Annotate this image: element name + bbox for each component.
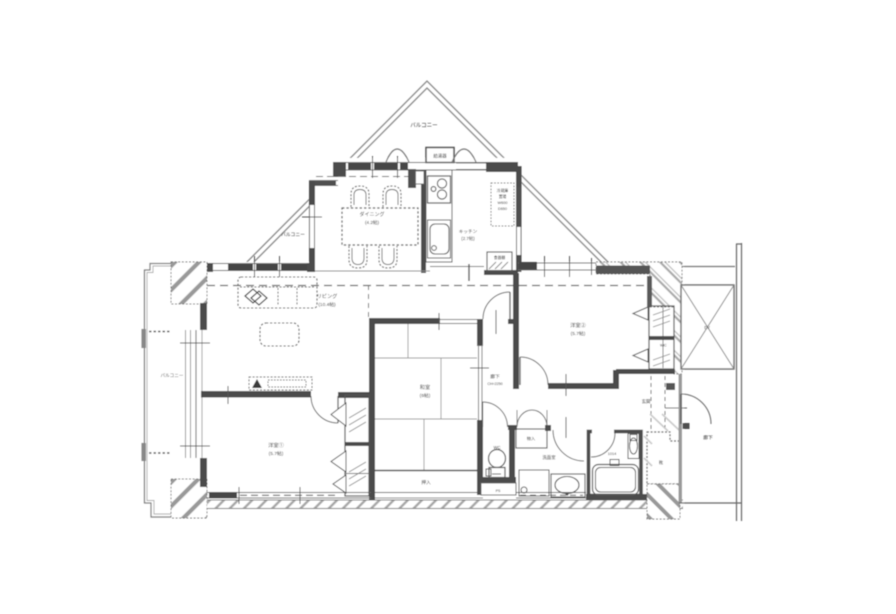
svg-text:冷蔵庫: 冷蔵庫	[497, 188, 509, 193]
svg-text:バルコニー: バルコニー	[281, 232, 305, 238]
svg-text:キッチン: キッチン	[459, 229, 478, 234]
svg-text:CH=2250: CH=2250	[487, 382, 502, 386]
svg-text:EV: EV	[704, 325, 710, 330]
svg-text:和室: 和室	[420, 383, 430, 391]
svg-text:置場: 置場	[499, 194, 507, 199]
svg-text:洋室①: 洋室①	[268, 441, 284, 449]
svg-text:ダイニング: ダイニング	[359, 211, 384, 218]
svg-text:W600: W600	[498, 201, 508, 205]
svg-text:洗面室: 洗面室	[542, 454, 556, 461]
svg-text:バルコニー: バルコニー	[161, 373, 184, 378]
svg-text:D650: D650	[498, 207, 507, 211]
svg-text:物入: 物入	[527, 435, 536, 442]
svg-text:(5.7帖): (5.7帖)	[571, 330, 586, 337]
svg-text:廊下: 廊下	[490, 373, 500, 380]
svg-text:(5.7帖): (5.7帖)	[269, 450, 284, 457]
svg-text:WIC: WIC	[660, 344, 667, 348]
svg-text:給湯器: 給湯器	[433, 153, 447, 160]
svg-text:(10.4帖): (10.4帖)	[318, 301, 336, 308]
svg-text:リビング: リビング	[317, 292, 338, 300]
svg-text:洋室②: 洋室②	[570, 321, 586, 329]
svg-text:(6帖): (6帖)	[420, 392, 431, 399]
svg-text:押入: 押入	[421, 479, 431, 486]
svg-text:(2.7帖): (2.7帖)	[461, 235, 475, 242]
svg-text:食器棚: 食器棚	[494, 255, 506, 260]
svg-text:バルコニー: バルコニー	[410, 122, 437, 129]
svg-text:廊下: 廊下	[703, 434, 713, 441]
svg-text:PS: PS	[496, 489, 501, 493]
svg-text:(4.2帖): (4.2帖)	[365, 219, 380, 226]
svg-text:玄関: 玄関	[642, 398, 651, 405]
svg-text:1014: 1014	[608, 452, 616, 456]
